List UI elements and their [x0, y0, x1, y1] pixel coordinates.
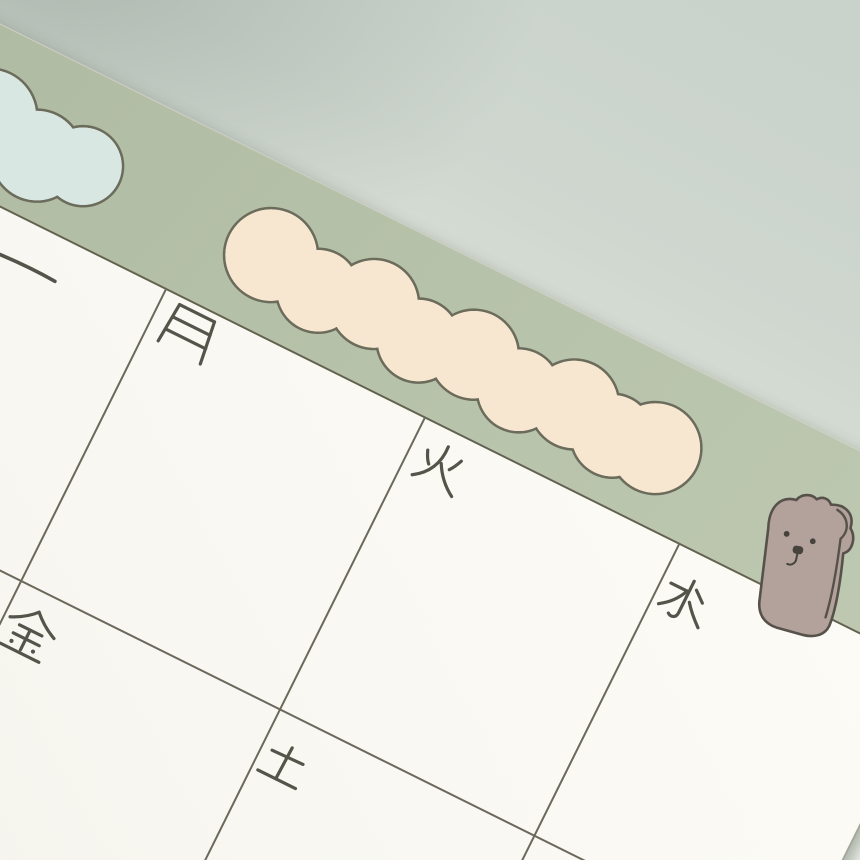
weekday-label-saturday	[250, 731, 318, 797]
weekday-label-friday	[0, 597, 68, 674]
photo-scene	[0, 0, 860, 860]
bread-bear-icon	[752, 489, 860, 640]
